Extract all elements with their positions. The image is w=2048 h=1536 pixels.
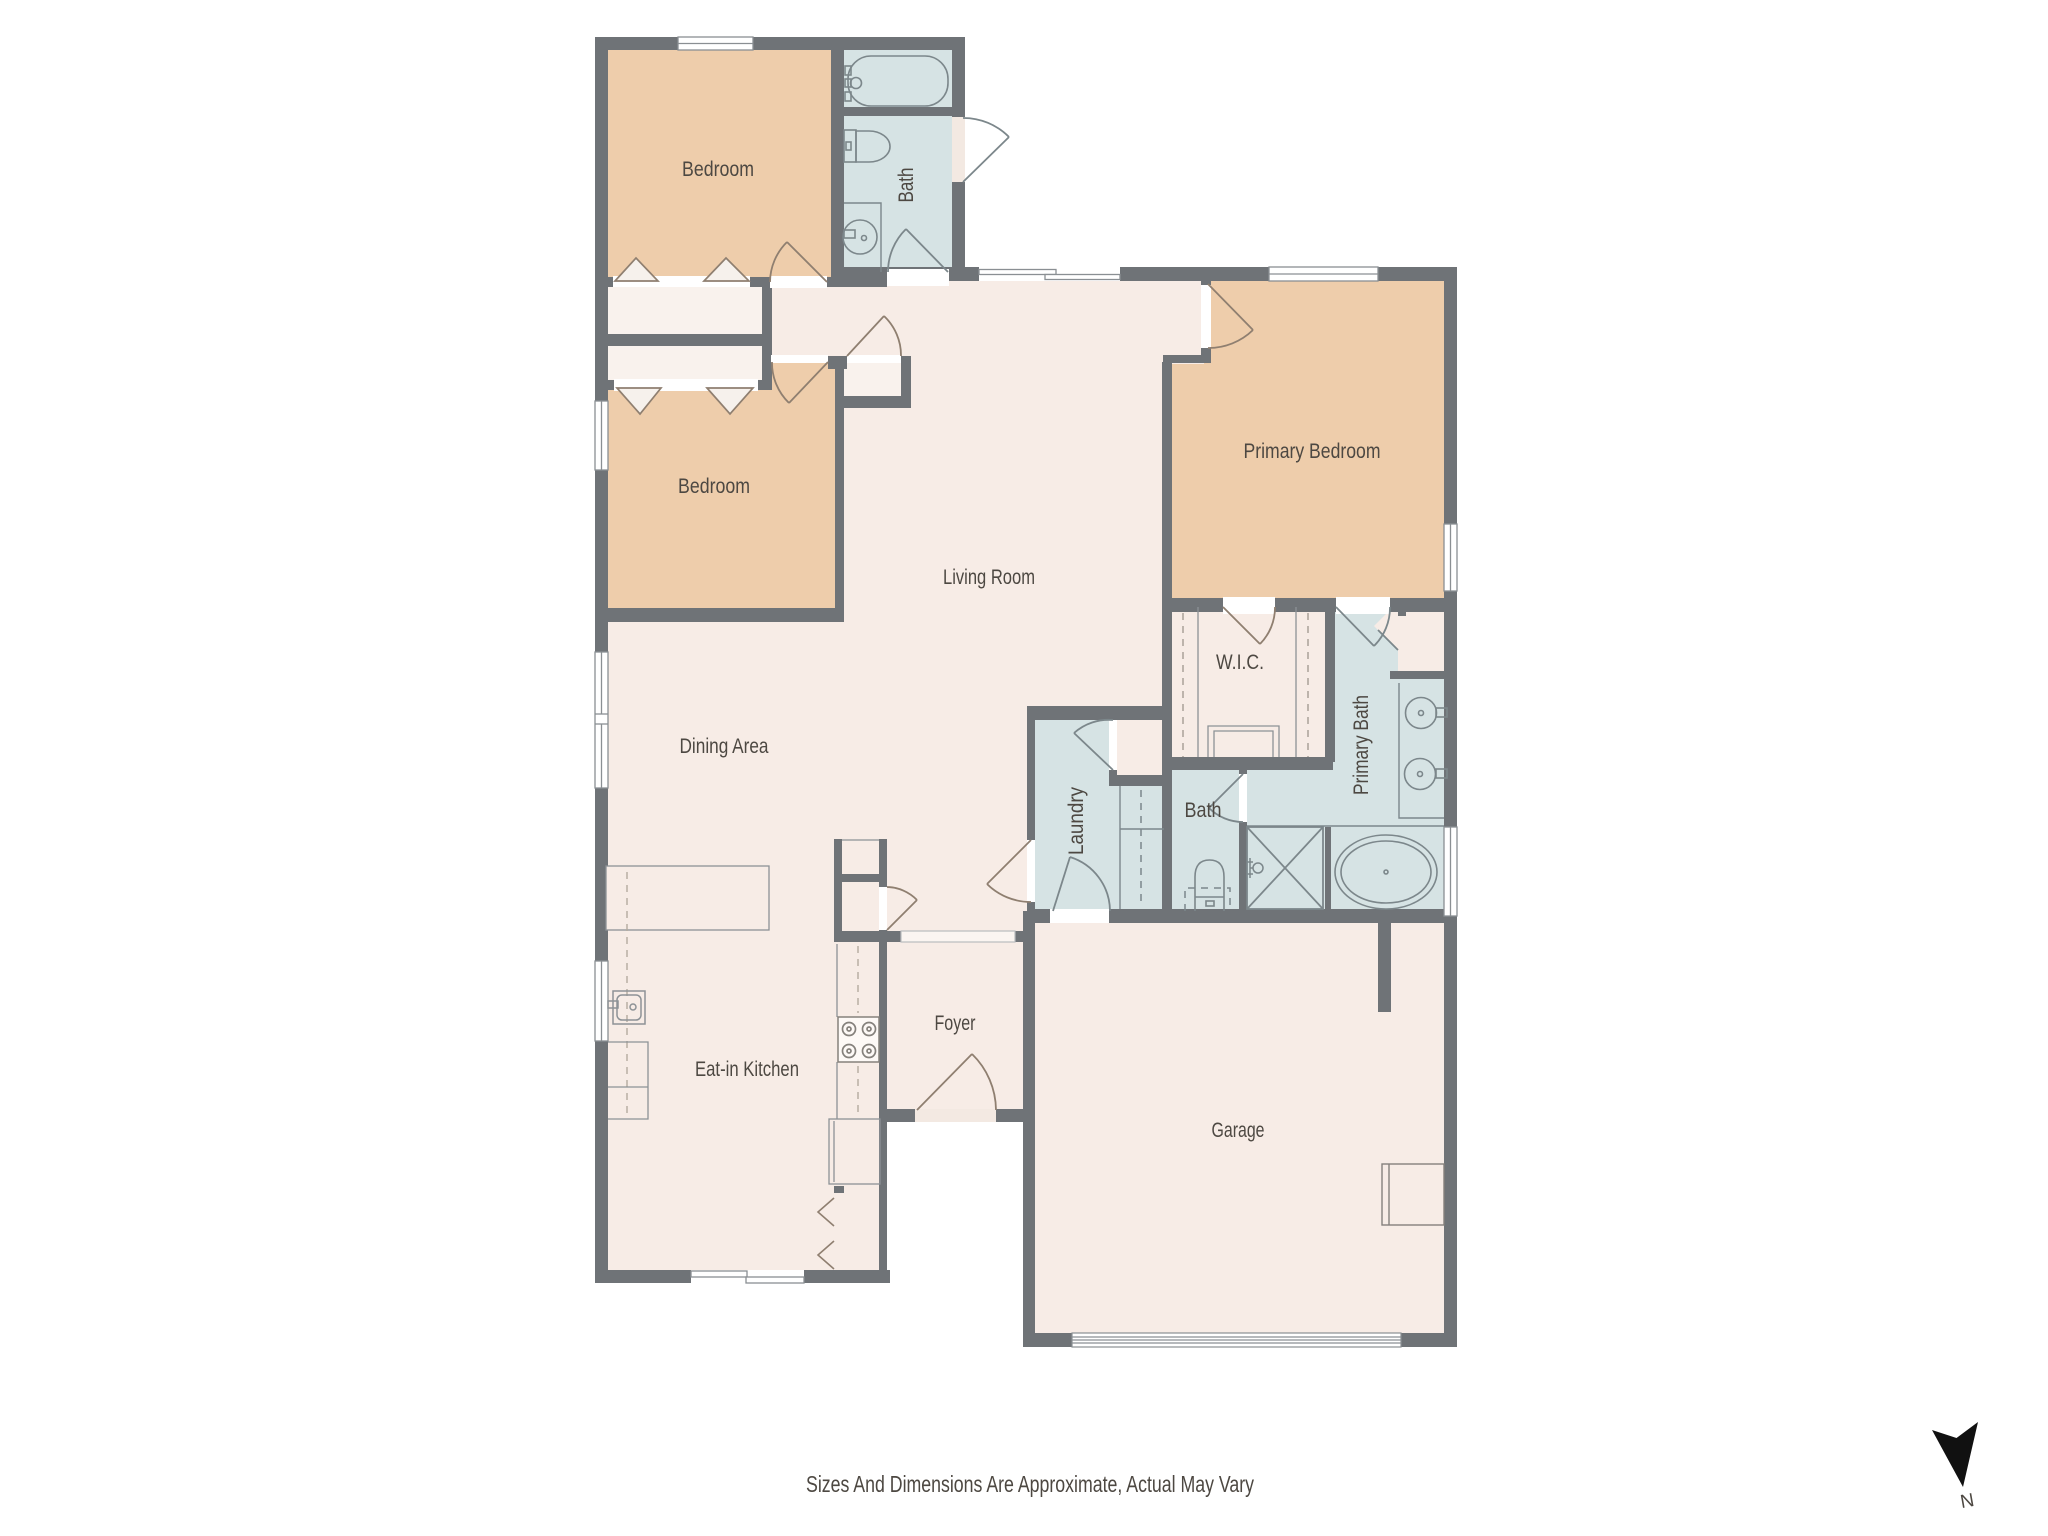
svg-text:Bedroom: Bedroom (678, 475, 750, 498)
svg-text:W.I.C.: W.I.C. (1216, 651, 1264, 674)
svg-text:Bath: Bath (1185, 799, 1222, 822)
svg-text:Sizes And Dimensions Are Appro: Sizes And Dimensions Are Approximate, Ac… (806, 1471, 1254, 1497)
svg-text:Garage: Garage (1212, 1119, 1265, 1142)
svg-text:Bedroom: Bedroom (682, 158, 754, 181)
svg-text:Bath: Bath (895, 168, 918, 203)
svg-text:Primary Bath: Primary Bath (1350, 695, 1373, 795)
svg-text:Living Room: Living Room (943, 566, 1035, 589)
svg-text:Dining Area: Dining Area (680, 735, 769, 758)
svg-text:Primary Bedroom: Primary Bedroom (1244, 440, 1381, 463)
svg-text:Eat-in Kitchen: Eat-in Kitchen (695, 1058, 799, 1081)
svg-text:Foyer: Foyer (935, 1012, 976, 1035)
svg-text:Laundry: Laundry (1065, 787, 1088, 855)
